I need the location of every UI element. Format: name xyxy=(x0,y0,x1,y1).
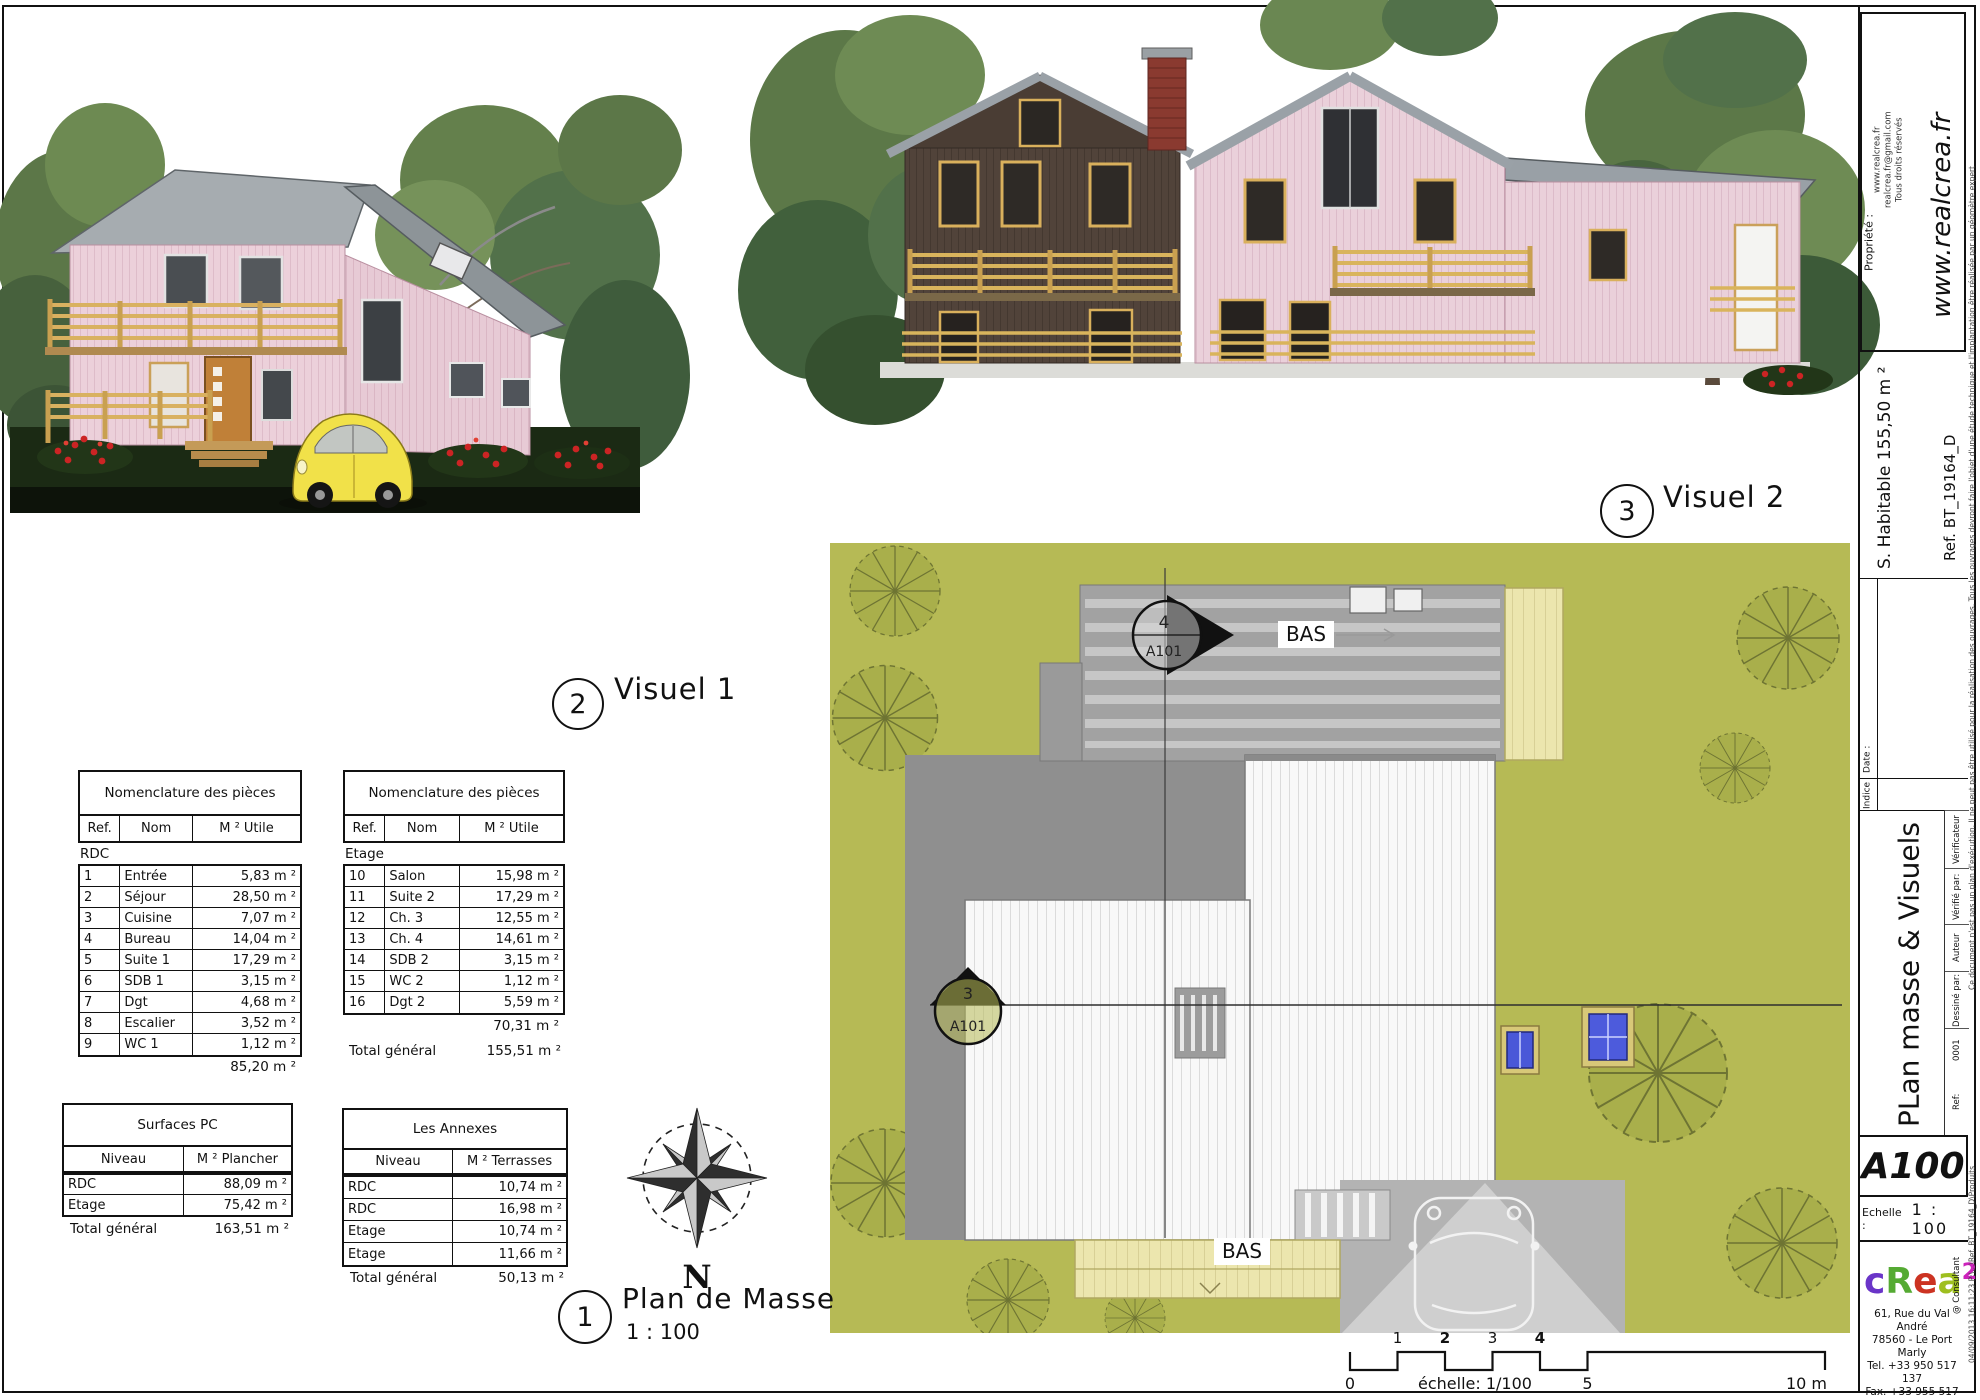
cell: WC 2 xyxy=(384,971,459,991)
drawing-sheet: 4 A101 3 A101 BAS BAS xyxy=(0,0,1980,1400)
col-header: Niveau xyxy=(64,1147,183,1171)
address-line: 78560 - Le Port Marly xyxy=(1860,1334,1964,1360)
cell: 9 xyxy=(80,1034,119,1055)
label-plan-masse: Plan de Masse xyxy=(622,1282,835,1315)
window xyxy=(1090,164,1130,226)
total-label: Total général xyxy=(342,1270,437,1286)
cell: SDB 1 xyxy=(119,971,192,991)
table-etage-total: Total général 155,51 m ² xyxy=(343,1043,561,1059)
cell: Bureau xyxy=(119,929,192,949)
cell: 14 xyxy=(345,950,384,970)
cell: 3,52 m ² xyxy=(192,1013,300,1033)
porch-step xyxy=(185,441,273,450)
tb-meta-strip: Vérificateur Vérifié par: Auteur Dessiné… xyxy=(1944,810,1968,1135)
table-rdc-subtotal: 85,20 m ² xyxy=(78,1059,296,1075)
tb-divider xyxy=(1858,578,1968,579)
col-header: M ² Utile xyxy=(192,816,300,841)
table-row: Etage75,42 m ² xyxy=(64,1195,291,1215)
callout-circle-visuel2: 3 xyxy=(1600,484,1654,538)
table-annexes-title: Les Annexes xyxy=(342,1108,568,1150)
cell: 10,74 m ² xyxy=(452,1177,566,1198)
roof-front-white xyxy=(965,900,1250,1240)
tb-reference: Ref. BT_19164_D xyxy=(1938,425,1962,570)
cell: 7,07 m ² xyxy=(192,908,300,928)
cell: Dgt xyxy=(119,992,192,1012)
table-etage-rows: 10Salon15,98 m ² 11Suite 217,29 m ² 12Ch… xyxy=(343,864,565,1015)
tb-sheet-title: PLan masse & Visuels xyxy=(1880,818,1938,1130)
table-rdc-title: Nomenclature des pièces xyxy=(78,770,302,816)
terrace-ground xyxy=(880,362,1810,378)
cell: 4,68 m ² xyxy=(192,992,300,1012)
total-value: 50,13 m ² xyxy=(498,1270,564,1286)
table-etage-group: Etage xyxy=(345,846,384,862)
company-address: 61, Rue du Val André 78560 - Le Port Mar… xyxy=(1860,1308,1964,1400)
svg-text:3: 3 xyxy=(1488,1329,1498,1347)
table-row: RDC10,74 m ² xyxy=(344,1177,566,1199)
deck-top xyxy=(1505,588,1563,760)
table-row: 12Ch. 312,55 m ² xyxy=(345,908,563,929)
table-row: 15WC 21,12 m ² xyxy=(345,971,563,992)
cell: 16 xyxy=(345,992,384,1013)
bas-label-bottom: BAS xyxy=(1214,1238,1270,1265)
total-label: Total général xyxy=(62,1221,157,1237)
cell: 11,66 m ² xyxy=(452,1243,566,1265)
col-header: M ² Terrasses xyxy=(452,1150,566,1173)
table-annexes-total: Total général 50,13 m ² xyxy=(342,1270,564,1286)
cell: 11 xyxy=(345,887,384,907)
svg-text:2: 2 xyxy=(1440,1329,1450,1347)
svg-text:BAS: BAS xyxy=(1286,622,1326,646)
tb-contact-line: www.realcrea.fr xyxy=(1872,105,1883,215)
skylight xyxy=(1350,587,1386,613)
cell: Entrée xyxy=(119,866,192,886)
cell: 15 xyxy=(345,971,384,991)
table-row: 4Bureau14,04 m ² xyxy=(80,929,300,950)
visual-2-render xyxy=(790,30,1850,470)
col-header: Ref. xyxy=(80,816,119,841)
table-row: 9WC 11,12 m ² xyxy=(80,1034,300,1055)
cell: 7 xyxy=(80,992,119,1012)
cell: Salon xyxy=(384,866,459,886)
gable-window xyxy=(1020,100,1060,146)
table-rdc-group: RDC xyxy=(80,846,109,862)
roof-main-white xyxy=(1245,755,1495,1240)
cell: 10 xyxy=(345,866,384,886)
cell: Etage xyxy=(344,1221,452,1242)
window xyxy=(1590,230,1626,280)
svg-text:0: 0 xyxy=(1345,1374,1355,1393)
cell: 88,09 m ² xyxy=(183,1175,291,1194)
sheet-number: A100 xyxy=(1861,1146,1964,1187)
cell: 5,83 m ² xyxy=(192,866,300,886)
cell: 14,04 m ² xyxy=(192,929,300,949)
cell: 1,12 m ² xyxy=(459,971,563,991)
tb-site-url: www.realcrea.fr xyxy=(1922,80,1962,350)
table-annexes-rows: RDC10,74 m ² RDC16,98 m ² Etage10,74 m ²… xyxy=(342,1175,568,1267)
cell: 2 xyxy=(80,887,119,907)
cell: 3,15 m ² xyxy=(459,950,563,970)
table-row: 5Suite 117,29 m ² xyxy=(80,950,300,971)
cell: 14,61 m ² xyxy=(459,929,563,949)
cell: RDC xyxy=(344,1177,452,1198)
chimney xyxy=(1142,48,1192,150)
table-row: 10Salon15,98 m ² xyxy=(345,866,563,887)
cell: 15,98 m ² xyxy=(459,866,563,886)
label-plan-scale: 1 : 100 xyxy=(626,1320,700,1344)
terrace-bottom xyxy=(1075,1240,1340,1298)
table-row: Etage10,74 m ² xyxy=(344,1221,566,1243)
window xyxy=(940,162,978,226)
edge-disclaimer: Ce document n'est pas un plan d'exécutio… xyxy=(1966,25,1978,1130)
cell: 17,29 m ² xyxy=(459,887,563,907)
callout-circle-plan: 1 xyxy=(558,1290,612,1344)
cell: 3,15 m ² xyxy=(192,971,300,991)
svg-text:A101: A101 xyxy=(1146,644,1182,660)
total-label: Total général xyxy=(343,1043,436,1059)
tb-habitable: S. Habitable 155,50 m ² xyxy=(1872,365,1898,570)
address-line: Tel. +33 950 517 137 xyxy=(1860,1360,1964,1386)
window xyxy=(262,370,292,420)
svg-text:4: 4 xyxy=(1159,613,1170,633)
logo-letter: c xyxy=(1864,1261,1885,1302)
svg-text:5: 5 xyxy=(1582,1374,1592,1393)
table-surfaces-header: Niveau M ² Plancher xyxy=(62,1147,293,1173)
col-header: M ² Utile xyxy=(459,816,563,841)
table-row: 3Cuisine7,07 m ² xyxy=(80,908,300,929)
tb-indice-label: Indice xyxy=(1860,781,1875,809)
total-value: 163,51 m ² xyxy=(215,1221,289,1237)
visual-1-render xyxy=(10,95,640,665)
cell: RDC xyxy=(64,1175,183,1194)
cell: WC 1 xyxy=(119,1034,192,1055)
col-header: Nom xyxy=(384,816,459,841)
tb-scale-box: Echelle : 1 : 100 xyxy=(1858,1197,1968,1242)
table-etage-title: Nomenclature des pièces xyxy=(343,770,565,816)
edge-file-info: 04/09/2013 16:11:23 P:\...\Ref. BT_19164… xyxy=(1966,1138,1978,1390)
cell: Suite 2 xyxy=(384,887,459,907)
col-header: M ² Plancher xyxy=(183,1147,291,1171)
svg-text:1: 1 xyxy=(1393,1329,1403,1347)
table-row: 6SDB 13,15 m ² xyxy=(80,971,300,992)
tb-contact-line: Tous droits réservés xyxy=(1894,100,1905,220)
col-header: Ref. xyxy=(345,816,384,841)
table-surfaces-total: Total général 163,51 m ² xyxy=(62,1221,289,1237)
window xyxy=(1002,162,1040,226)
table-row: RDC88,09 m ² xyxy=(64,1175,291,1195)
cell: 5,59 m ² xyxy=(459,992,563,1013)
tb-date-label: Date : xyxy=(1860,742,1875,776)
address-line: Fax. +33 955 517 137 xyxy=(1860,1386,1964,1400)
cell: 16,98 m ² xyxy=(452,1199,566,1220)
table-row: 1Entrée5,83 m ² xyxy=(80,866,300,887)
flower-bush xyxy=(1743,365,1833,395)
table-row: 8Escalier3,52 m ² xyxy=(80,1013,300,1034)
cell: RDC xyxy=(344,1199,452,1220)
cell: 5 xyxy=(80,950,119,970)
label-visuel2: Visuel 2 xyxy=(1663,480,1785,514)
table-rdc-header: Ref. Nom M ² Utile xyxy=(78,816,302,843)
svg-text:A101: A101 xyxy=(950,1019,986,1035)
window xyxy=(502,379,530,407)
logo-letter: e xyxy=(1913,1261,1937,1302)
table-etage-subtotal: 70,31 m ² xyxy=(343,1018,559,1034)
cell: 10,74 m ² xyxy=(452,1221,566,1242)
svg-text:3: 3 xyxy=(963,984,973,1003)
table-rdc-rows: 1Entrée5,83 m ² 2Séjour28,50 m ² 3Cuisin… xyxy=(78,864,302,1057)
tb-sheet-number-box: A100 xyxy=(1858,1135,1968,1197)
roof-shadow xyxy=(965,755,1245,900)
site-plan-render: 4 A101 3 A101 BAS BAS xyxy=(830,543,1850,1333)
north-compass: N xyxy=(622,1096,772,1296)
cell: 75,42 m ² xyxy=(183,1195,291,1215)
cell: Etage xyxy=(344,1243,452,1265)
window xyxy=(1415,180,1455,242)
callout-circle-visuel1: 2 xyxy=(552,678,604,730)
company-logo: cRea2L xyxy=(1864,1260,1954,1302)
svg-text:BAS: BAS xyxy=(1222,1239,1262,1263)
window xyxy=(1245,180,1285,242)
table-row: 16Dgt 25,59 m ² xyxy=(345,992,563,1013)
logo-letter: R xyxy=(1885,1261,1913,1302)
cell: 13 xyxy=(345,929,384,949)
table-row: Etage11,66 m ² xyxy=(344,1243,566,1265)
tb-revision-vline xyxy=(1877,578,1878,810)
scale-bar: 1 2 3 4 0 échelle: 1/100 5 10 m xyxy=(1330,1322,1840,1394)
cell: Cuisine xyxy=(119,908,192,928)
cell: Ch. 4 xyxy=(384,929,459,949)
table-etage-header: Ref. Nom M ² Utile xyxy=(343,816,565,843)
cell: 12,55 m ² xyxy=(459,908,563,928)
cell: 6 xyxy=(80,971,119,991)
scale-caption: échelle: 1/100 xyxy=(1418,1374,1532,1393)
cell: Séjour xyxy=(119,887,192,907)
cell: Escalier xyxy=(119,1013,192,1033)
cell: 1,12 m ² xyxy=(192,1034,300,1055)
tb-revision-hline xyxy=(1858,778,1968,779)
col-header: Nom xyxy=(119,816,192,841)
cell: Dgt 2 xyxy=(384,992,459,1013)
roof-dark-house xyxy=(1040,585,1505,761)
table-row: RDC16,98 m ² xyxy=(344,1199,566,1221)
cell: SDB 2 xyxy=(384,950,459,970)
total-value: 155,51 m ² xyxy=(487,1043,561,1059)
tb-contact-line: realcrea.fr@gmail.com xyxy=(1883,95,1894,225)
table-row: 14SDB 23,15 m ² xyxy=(345,950,563,971)
table-surfaces-rows: RDC88,09 m ² Etage75,42 m ² xyxy=(62,1173,293,1217)
balcony-floor xyxy=(45,347,347,355)
table-surfaces-title: Surfaces PC xyxy=(62,1103,293,1147)
cell: Ch. 3 xyxy=(384,908,459,928)
window xyxy=(165,255,207,307)
cell: Etage xyxy=(64,1195,183,1215)
col-header: Niveau xyxy=(344,1150,452,1173)
table-row: 11Suite 217,29 m ² xyxy=(345,887,563,908)
table-row: 13Ch. 414,61 m ² xyxy=(345,929,563,950)
cell: 17,29 m ² xyxy=(192,950,300,970)
label-visuel1: Visuel 1 xyxy=(614,672,736,706)
tb-logo-box: cRea2L @ Consultant 61, Rue du Val André… xyxy=(1858,1242,1968,1393)
cell: 8 xyxy=(80,1013,119,1033)
window xyxy=(362,300,402,382)
window xyxy=(450,363,484,397)
cell: 3 xyxy=(80,908,119,928)
cell: 28,50 m ² xyxy=(192,887,300,907)
table-annexes-header: Niveau M ² Terrasses xyxy=(342,1150,568,1175)
cell: Suite 1 xyxy=(119,950,192,970)
svg-text:10 m: 10 m xyxy=(1786,1374,1827,1393)
cell: 1 xyxy=(80,866,119,886)
scale-label: Echelle : xyxy=(1858,1206,1902,1232)
address-line: 61, Rue du Val André xyxy=(1860,1308,1964,1334)
svg-text:4: 4 xyxy=(1535,1329,1545,1347)
table-row: 2Séjour28,50 m ² xyxy=(80,887,300,908)
cell: 12 xyxy=(345,908,384,928)
cell: 4 xyxy=(80,929,119,949)
window xyxy=(1220,300,1265,360)
table-row: 7Dgt4,68 m ² xyxy=(80,992,300,1013)
scale-value: 1 : 100 xyxy=(1912,1200,1968,1238)
skylight xyxy=(1394,589,1422,611)
